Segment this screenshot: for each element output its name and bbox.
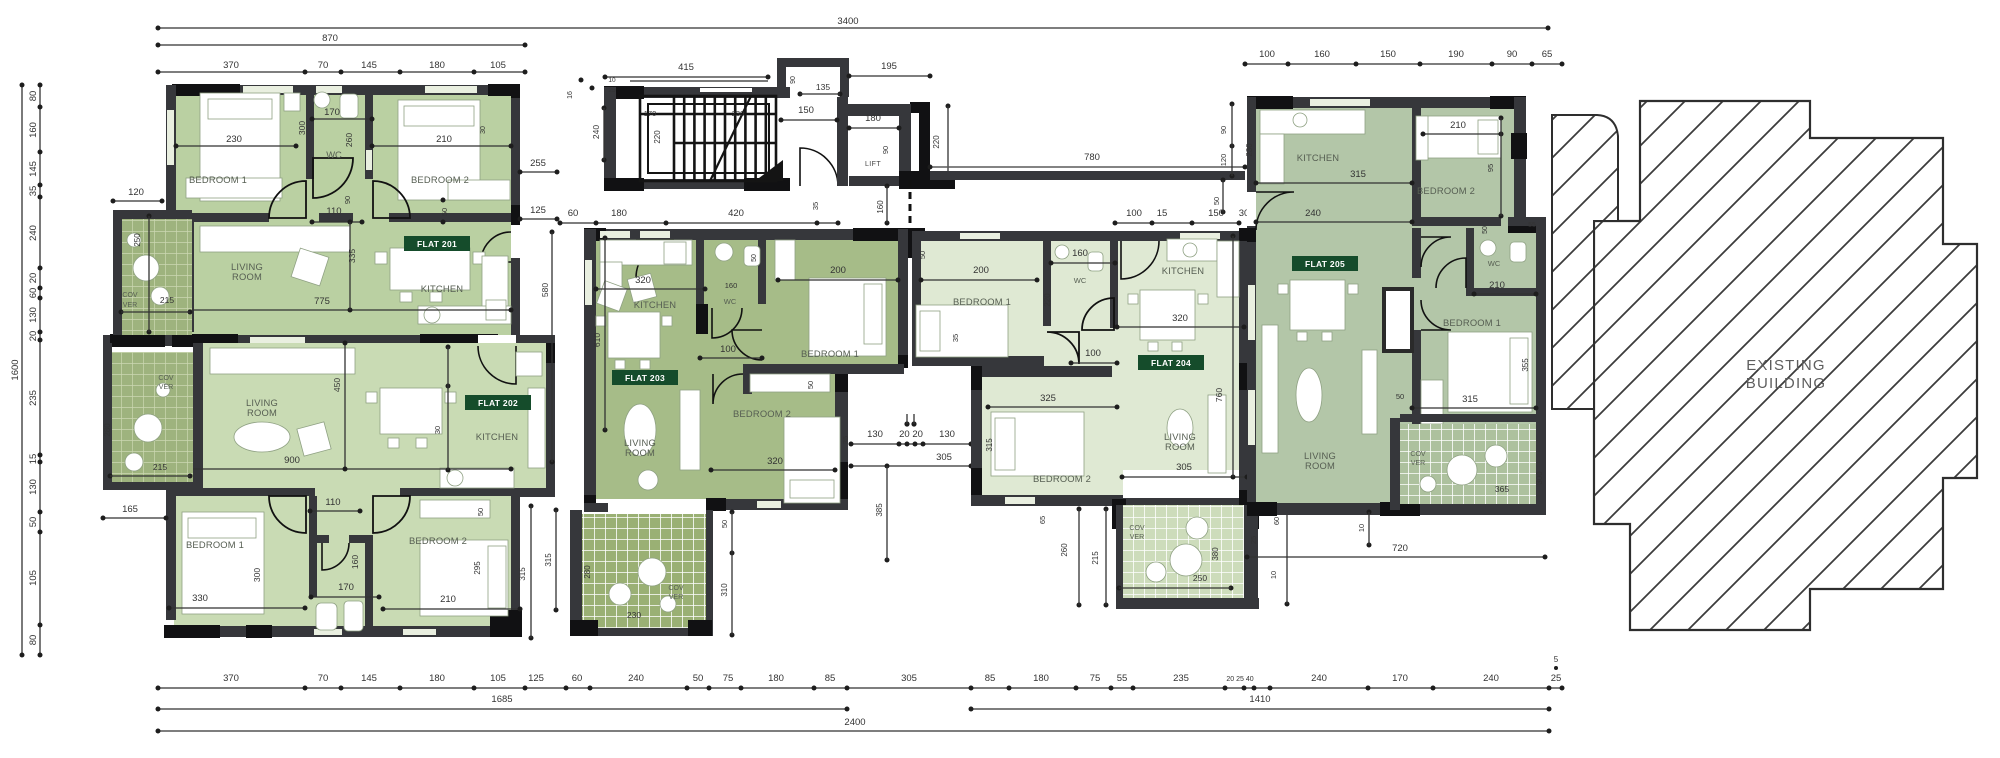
svg-text:70: 70 <box>318 60 329 71</box>
svg-text:220: 220 <box>932 135 941 149</box>
svg-text:300: 300 <box>297 121 307 135</box>
svg-text:260: 260 <box>344 133 354 147</box>
svg-text:25: 25 <box>608 87 616 94</box>
svg-text:180: 180 <box>768 673 784 684</box>
svg-text:315: 315 <box>518 567 527 581</box>
svg-text:70: 70 <box>318 673 329 684</box>
svg-text:230: 230 <box>226 134 242 145</box>
svg-text:240: 240 <box>1311 673 1327 684</box>
svg-text:35: 35 <box>811 202 820 210</box>
svg-text:235: 235 <box>28 390 39 406</box>
svg-text:25: 25 <box>1249 536 1258 544</box>
svg-text:215: 215 <box>160 295 174 305</box>
svg-text:ROOM: ROOM <box>232 271 262 282</box>
svg-text:180: 180 <box>611 208 627 219</box>
svg-text:FLAT 205: FLAT 205 <box>1305 259 1345 269</box>
svg-text:ROOM: ROOM <box>625 447 655 458</box>
svg-text:100: 100 <box>1259 49 1275 60</box>
svg-text:280: 280 <box>103 423 112 437</box>
svg-text:FLAT 204: FLAT 204 <box>1151 358 1191 368</box>
svg-text:125: 125 <box>528 673 544 684</box>
svg-text:105: 105 <box>490 60 506 71</box>
svg-text:50: 50 <box>1212 197 1221 205</box>
svg-text:250: 250 <box>1193 573 1207 583</box>
svg-text:780: 780 <box>1084 152 1100 163</box>
svg-text:ROOM: ROOM <box>1305 460 1335 471</box>
svg-text:BEDROOM 2: BEDROOM 2 <box>1417 185 1475 196</box>
svg-text:720: 720 <box>1392 543 1408 554</box>
svg-text:450: 450 <box>332 378 342 392</box>
svg-text:EXISTING: EXISTING <box>1746 357 1826 374</box>
svg-text:900: 900 <box>284 455 300 466</box>
svg-text:775: 775 <box>314 296 330 307</box>
svg-text:WC: WC <box>1074 276 1087 285</box>
svg-text:50: 50 <box>720 520 729 528</box>
svg-text:35: 35 <box>28 186 39 197</box>
svg-text:210: 210 <box>1450 120 1466 131</box>
svg-text:BEDROOM 2: BEDROOM 2 <box>1033 473 1091 484</box>
svg-text:315: 315 <box>1350 169 1366 180</box>
svg-text:1600: 1600 <box>10 359 21 380</box>
svg-text:180: 180 <box>429 60 445 71</box>
svg-text:50: 50 <box>28 517 39 528</box>
svg-text:240: 240 <box>591 125 601 139</box>
svg-text:760: 760 <box>1214 388 1224 402</box>
svg-text:BUILDING: BUILDING <box>1746 375 1826 392</box>
svg-text:220: 220 <box>653 130 662 144</box>
svg-text:170: 170 <box>324 107 340 118</box>
svg-text:90: 90 <box>790 76 797 84</box>
svg-text:335: 335 <box>347 249 357 263</box>
svg-text:100: 100 <box>1126 208 1142 219</box>
svg-text:VER: VER <box>1411 460 1425 467</box>
svg-text:1410: 1410 <box>1249 694 1270 705</box>
svg-text:215: 215 <box>1091 551 1100 565</box>
svg-text:365: 365 <box>1495 484 1509 494</box>
svg-text:50: 50 <box>1482 226 1489 234</box>
svg-text:90: 90 <box>881 146 890 154</box>
svg-text:20 20: 20 20 <box>899 429 923 440</box>
svg-text:135: 135 <box>816 82 830 92</box>
svg-text:30: 30 <box>480 126 487 134</box>
svg-text:VER: VER <box>123 302 137 309</box>
svg-text:COV: COV <box>1129 525 1145 532</box>
svg-text:3400: 3400 <box>837 16 858 27</box>
svg-text:KITCHEN: KITCHEN <box>634 299 677 310</box>
svg-text:1685: 1685 <box>491 694 512 705</box>
svg-text:280: 280 <box>583 565 592 579</box>
svg-text:60: 60 <box>572 673 583 684</box>
svg-text:255: 255 <box>530 158 546 169</box>
svg-text:KITCHEN: KITCHEN <box>476 431 519 442</box>
svg-text:30: 30 <box>433 426 442 434</box>
svg-text:5: 5 <box>1554 655 1559 664</box>
svg-text:50: 50 <box>751 254 758 262</box>
svg-text:180: 180 <box>1033 673 1049 684</box>
svg-text:105: 105 <box>490 673 506 684</box>
svg-text:35: 35 <box>841 436 850 444</box>
svg-text:50: 50 <box>693 673 704 684</box>
svg-text:145: 145 <box>361 673 377 684</box>
svg-text:180: 180 <box>429 673 445 684</box>
svg-text:160: 160 <box>350 555 360 569</box>
svg-text:315: 315 <box>544 553 553 567</box>
svg-text:310: 310 <box>720 583 729 597</box>
svg-text:230: 230 <box>627 610 641 620</box>
svg-text:COV: COV <box>122 292 138 299</box>
svg-text:20: 20 <box>28 331 39 342</box>
svg-text:85: 85 <box>825 673 836 684</box>
svg-text:105: 105 <box>28 570 39 586</box>
svg-text:610: 610 <box>592 333 602 347</box>
svg-text:COV: COV <box>668 585 684 592</box>
svg-text:65: 65 <box>1542 49 1553 60</box>
svg-text:150: 150 <box>798 105 814 116</box>
svg-text:415: 415 <box>678 62 694 73</box>
svg-text:230: 230 <box>732 109 745 118</box>
svg-text:60: 60 <box>28 288 39 299</box>
svg-text:240: 240 <box>1483 673 1499 684</box>
svg-text:210: 210 <box>440 594 456 605</box>
svg-text:90: 90 <box>1507 49 1518 60</box>
svg-text:KITCHEN: KITCHEN <box>1297 152 1340 163</box>
svg-text:25: 25 <box>1551 673 1562 684</box>
svg-text:60: 60 <box>1272 517 1281 525</box>
svg-text:BEDROOM 1: BEDROOM 1 <box>801 348 859 359</box>
svg-text:ROOM: ROOM <box>247 407 277 418</box>
svg-text:195: 195 <box>881 61 897 72</box>
svg-text:120: 120 <box>1219 154 1228 167</box>
svg-text:320: 320 <box>767 456 783 467</box>
svg-text:170: 170 <box>1392 673 1408 684</box>
svg-text:90: 90 <box>1219 126 1228 134</box>
svg-text:325: 325 <box>1040 393 1056 404</box>
svg-text:200: 200 <box>973 265 989 276</box>
svg-text:KITCHEN: KITCHEN <box>1162 265 1205 276</box>
svg-text:160: 160 <box>876 200 885 214</box>
svg-text:305: 305 <box>901 673 917 684</box>
svg-text:170: 170 <box>338 582 354 593</box>
svg-text:VER: VER <box>669 594 683 601</box>
svg-text:80: 80 <box>28 91 39 102</box>
svg-text:210: 210 <box>1489 280 1505 291</box>
svg-text:250: 250 <box>133 233 142 247</box>
svg-text:BEDROOM 1: BEDROOM 1 <box>953 296 1011 307</box>
svg-text:150: 150 <box>1208 208 1224 219</box>
svg-text:65: 65 <box>1038 516 1047 524</box>
svg-text:COV: COV <box>1410 451 1426 458</box>
svg-text:130: 130 <box>28 307 39 323</box>
svg-text:100: 100 <box>720 344 736 355</box>
svg-text:300: 300 <box>252 568 262 582</box>
svg-text:2400: 2400 <box>844 717 865 728</box>
svg-text:240: 240 <box>628 673 644 684</box>
svg-text:95: 95 <box>1486 164 1495 172</box>
svg-text:125: 125 <box>530 205 546 216</box>
svg-text:50: 50 <box>1396 392 1404 401</box>
svg-text:WC: WC <box>326 149 342 160</box>
svg-text:370: 370 <box>223 60 239 71</box>
svg-text:55: 55 <box>1117 673 1128 684</box>
svg-text:160: 160 <box>28 122 39 138</box>
svg-text:385: 385 <box>875 503 884 517</box>
svg-text:LIFT: LIFT <box>865 161 881 168</box>
svg-text:50: 50 <box>440 208 449 216</box>
svg-text:ROOM: ROOM <box>1165 441 1195 452</box>
svg-text:55: 55 <box>1528 222 1536 229</box>
svg-text:10: 10 <box>1269 571 1278 579</box>
svg-text:580: 580 <box>540 283 550 297</box>
svg-text:BEDROOM 2: BEDROOM 2 <box>409 535 467 546</box>
svg-text:120: 120 <box>128 187 144 198</box>
svg-text:160: 160 <box>725 281 738 290</box>
svg-text:15: 15 <box>28 454 39 465</box>
svg-text:10: 10 <box>608 77 616 84</box>
svg-text:145: 145 <box>361 60 377 71</box>
svg-text:KITCHEN: KITCHEN <box>421 283 464 294</box>
svg-text:COV: COV <box>158 375 174 382</box>
svg-text:370: 370 <box>223 673 239 684</box>
svg-text:15: 15 <box>1157 208 1168 219</box>
svg-text:295: 295 <box>473 561 482 575</box>
svg-text:FLAT 202: FLAT 202 <box>478 398 518 408</box>
svg-text:315: 315 <box>1462 394 1478 405</box>
svg-text:130: 130 <box>939 429 955 440</box>
svg-text:WC: WC <box>1488 259 1501 268</box>
svg-text:150: 150 <box>1380 49 1396 60</box>
svg-text:160: 160 <box>1072 248 1088 259</box>
svg-text:165: 165 <box>122 504 138 515</box>
svg-text:170: 170 <box>644 109 657 118</box>
svg-text:20: 20 <box>28 273 39 284</box>
svg-text:BEDROOM 1: BEDROOM 1 <box>186 539 244 550</box>
svg-text:305: 305 <box>936 452 952 463</box>
svg-text:220: 220 <box>1043 293 1052 307</box>
svg-text:320: 320 <box>1172 313 1188 324</box>
svg-text:305: 305 <box>1176 462 1192 473</box>
svg-text:230: 230 <box>1245 143 1254 157</box>
svg-text:210: 210 <box>436 134 452 145</box>
svg-text:BEDROOM 2: BEDROOM 2 <box>411 174 469 185</box>
svg-text:215: 215 <box>153 462 167 472</box>
svg-text:85: 85 <box>985 673 996 684</box>
svg-text:300: 300 <box>1535 471 1544 485</box>
svg-text:870: 870 <box>322 33 338 44</box>
svg-text:35: 35 <box>951 334 960 342</box>
svg-text:VER: VER <box>159 384 173 391</box>
svg-text:180: 180 <box>865 113 881 124</box>
svg-text:355: 355 <box>1521 358 1530 372</box>
svg-text:315: 315 <box>985 438 994 452</box>
svg-text:90: 90 <box>343 196 352 204</box>
svg-text:130: 130 <box>28 479 39 495</box>
svg-text:BEDROOM 1: BEDROOM 1 <box>189 174 247 185</box>
svg-text:50: 50 <box>918 251 927 259</box>
svg-text:145: 145 <box>28 161 39 177</box>
svg-text:BEDROOM 1: BEDROOM 1 <box>1443 317 1501 328</box>
svg-text:130: 130 <box>867 429 883 440</box>
svg-text:VER: VER <box>1130 534 1144 541</box>
svg-text:240: 240 <box>1305 208 1321 219</box>
svg-text:BEDROOM 2: BEDROOM 2 <box>733 408 791 419</box>
svg-text:80: 80 <box>28 635 39 646</box>
svg-text:FLAT 201: FLAT 201 <box>417 239 457 249</box>
svg-text:160: 160 <box>1314 49 1330 60</box>
svg-text:380: 380 <box>1211 547 1220 561</box>
svg-text:240: 240 <box>28 225 39 241</box>
svg-text:200: 200 <box>830 265 846 276</box>
svg-text:75: 75 <box>1090 673 1101 684</box>
svg-text:60: 60 <box>568 208 579 219</box>
svg-text:75: 75 <box>723 673 734 684</box>
svg-text:20 25 40: 20 25 40 <box>1226 676 1253 683</box>
svg-text:235: 235 <box>1173 673 1189 684</box>
svg-text:100: 100 <box>1085 348 1101 359</box>
svg-text:330: 330 <box>192 593 208 604</box>
svg-text:260: 260 <box>1060 543 1069 557</box>
svg-text:10: 10 <box>1357 524 1366 532</box>
svg-text:190: 190 <box>1448 49 1464 60</box>
svg-text:50: 50 <box>806 381 815 389</box>
svg-text:110: 110 <box>325 497 340 508</box>
svg-text:WC: WC <box>724 297 737 306</box>
svg-text:420: 420 <box>728 208 744 219</box>
svg-text:50: 50 <box>476 508 485 516</box>
svg-text:320: 320 <box>635 275 651 286</box>
svg-text:FLAT 203: FLAT 203 <box>625 373 665 383</box>
svg-text:110: 110 <box>326 206 341 217</box>
svg-text:16: 16 <box>567 91 574 99</box>
